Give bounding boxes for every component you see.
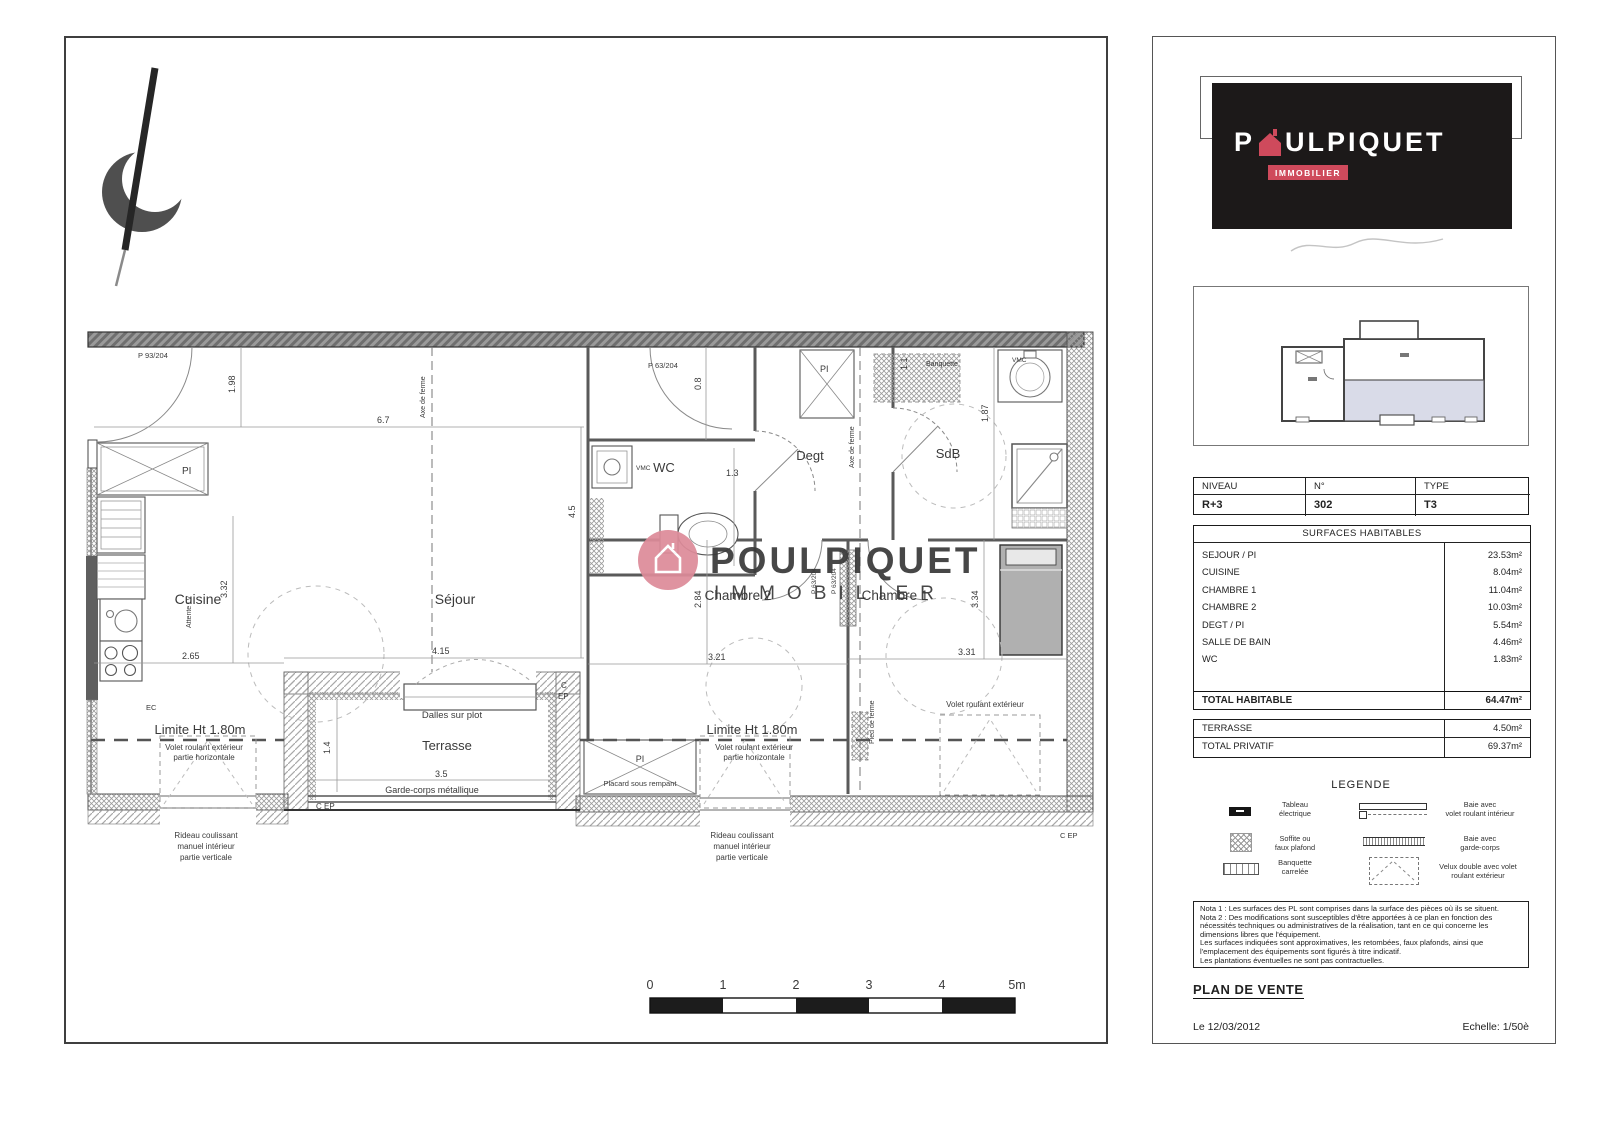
ann-volet-left-1: Volet roulant extérieur bbox=[165, 743, 243, 752]
surface-value: 5.54m² bbox=[1448, 617, 1522, 634]
table-divider bbox=[1444, 720, 1445, 757]
north-arrow-icon bbox=[102, 68, 188, 286]
scale-label-4: 4 bbox=[939, 978, 946, 992]
house-icon bbox=[1257, 128, 1283, 158]
info-header-type: TYPE bbox=[1416, 478, 1530, 495]
dim-1-3: 1.3 bbox=[726, 468, 739, 478]
surface-row: CHAMBRE 111.04m² bbox=[1194, 582, 1530, 599]
ann-volet-ext: Volet roulant extérieur bbox=[946, 700, 1024, 709]
ann-dalles: Dalles sur plot bbox=[422, 710, 483, 721]
document-date: Le 12/03/2012 bbox=[1193, 1021, 1260, 1033]
scale-label-2: 2 bbox=[793, 978, 800, 992]
notes-box: Nota 1 : Les surfaces des PL sont compri… bbox=[1193, 901, 1529, 968]
dim-0-8: 0.8 bbox=[693, 377, 703, 390]
surface-label: CHAMBRE 1 bbox=[1202, 582, 1256, 599]
pencil-scribble bbox=[1283, 231, 1453, 259]
info-panel: P ULPIQUET IMMOBILIER bbox=[1152, 36, 1556, 1044]
ann-vmc-wc: VMC bbox=[636, 465, 651, 472]
ann-placard: Placard sous rempant bbox=[604, 779, 678, 788]
watermark-brand: POULPIQUET bbox=[710, 540, 981, 581]
soffite-icon bbox=[1230, 833, 1252, 852]
total-privatif-row: TOTAL PRIVATIF 69.37m² bbox=[1194, 738, 1530, 755]
kitchen-fixtures bbox=[97, 443, 208, 681]
degt-placard bbox=[800, 350, 854, 418]
surface-value: 8.04m² bbox=[1448, 564, 1522, 581]
scale-label-5m: 5m bbox=[1008, 978, 1025, 992]
note-line: Les plantations éventuelles ne sont pas … bbox=[1200, 957, 1522, 966]
info-value-numero: 302 bbox=[1306, 495, 1416, 516]
dim-3-21: 3.21 bbox=[708, 652, 726, 662]
dim-4-5: 4.5 bbox=[567, 505, 577, 518]
privatif-table: TERRASSE 4.50m² TOTAL PRIVATIF 69.37m² bbox=[1193, 719, 1531, 758]
room-label-terrasse: Terrasse bbox=[422, 738, 472, 753]
legend-line: carrelée bbox=[1263, 868, 1327, 877]
room-label-degt: Degt bbox=[796, 448, 824, 463]
scale-bar: 0 1 2 3 4 5m bbox=[647, 978, 1026, 1013]
room-label-wc: WC bbox=[653, 460, 675, 475]
surface-label: SEJOUR / PI bbox=[1202, 547, 1256, 564]
agency-logo-text: P ULPIQUET bbox=[1234, 127, 1446, 158]
surface-label: CHAMBRE 2 bbox=[1202, 599, 1256, 616]
legend-label: Banquette carrelée bbox=[1263, 859, 1327, 876]
dim-3-31: 3.31 bbox=[958, 647, 976, 657]
surface-label: WC bbox=[1202, 651, 1218, 668]
legend-line: électrique bbox=[1263, 810, 1327, 819]
scale-label-1: 1 bbox=[720, 978, 727, 992]
bed-chambre1 bbox=[1000, 545, 1062, 655]
room-label-sejour: Séjour bbox=[435, 591, 476, 607]
ann-pied: Pied de ferme bbox=[869, 700, 876, 744]
total-privatif-label: TOTAL PRIVATIF bbox=[1202, 738, 1274, 755]
legend-line: roulant extérieur bbox=[1429, 872, 1527, 881]
legend-label: Velux double avec volet roulant extérieu… bbox=[1429, 863, 1527, 880]
legend-label: Baie avec garde-corps bbox=[1433, 835, 1527, 852]
ann-vmc-sdb: VMC bbox=[1012, 357, 1027, 364]
surface-value: 23.53m² bbox=[1448, 547, 1522, 564]
room-label-cuisine: Cuisine bbox=[175, 591, 222, 607]
surface-value: 1.83m² bbox=[1448, 651, 1522, 668]
ann-pi-rampant: PI bbox=[636, 754, 645, 764]
ann-rideau-center-2: manuel intérieur bbox=[713, 842, 771, 851]
surface-row: DEGT / PI5.54m² bbox=[1194, 617, 1530, 634]
terrasse-label: TERRASSE bbox=[1202, 720, 1252, 737]
surface-label: SALLE DE BAIN bbox=[1202, 634, 1271, 651]
legend-line: volet roulant intérieur bbox=[1433, 810, 1527, 819]
logo-subtitle: IMMOBILIER bbox=[1268, 165, 1348, 180]
scale-label-0: 0 bbox=[647, 978, 654, 992]
ann-axe-1: Axe de ferme bbox=[420, 376, 427, 418]
ann-rideau-left-1: Rideau coulissant bbox=[174, 831, 238, 840]
info-header-numero: N° bbox=[1306, 478, 1416, 495]
ann-limite-right: Limite Ht 1.80m bbox=[706, 722, 797, 737]
unit-info-table: NIVEAU N° TYPE R+3 302 T3 bbox=[1193, 477, 1529, 515]
ann-rideau-left-2: manuel intérieur bbox=[177, 842, 235, 851]
surfaces-title: SURFACES HABITABLES bbox=[1194, 526, 1530, 543]
ann-pi-degt: PI bbox=[820, 364, 829, 374]
ann-ec: EC bbox=[146, 703, 157, 712]
dim-2-65: 2.65 bbox=[182, 651, 200, 661]
ann-volet-right-1: Volet roulant extérieur bbox=[715, 743, 793, 752]
ann-limite-left: Limite Ht 1.80m bbox=[154, 722, 245, 737]
ann-rideau-center-3: partie verticale bbox=[716, 853, 769, 862]
door-label-wc: P 63/204 bbox=[648, 361, 678, 370]
surface-row: SEJOUR / PI23.53m² bbox=[1194, 547, 1530, 564]
watermark-house-icon bbox=[638, 530, 698, 590]
dim-1-1: 1.1 bbox=[899, 357, 909, 370]
ann-c: C bbox=[561, 681, 567, 690]
logo-text-rest: ULPIQUET bbox=[1285, 127, 1446, 158]
watermark-sub: IMMOBILIER bbox=[714, 583, 946, 604]
ann-banquette: Banquette bbox=[926, 361, 958, 368]
watermark: POULPIQUET IMMOBILIER bbox=[638, 530, 981, 604]
document-title: PLAN DE VENTE bbox=[1193, 982, 1304, 999]
surfaces-table: SURFACES HABITABLES SEJOUR / PI23.53m² C… bbox=[1193, 525, 1531, 710]
total-habitable-label: TOTAL HABITABLE bbox=[1202, 692, 1292, 709]
document-scale: Echelle: 1/50è bbox=[1405, 1021, 1529, 1033]
info-value-niveau: R+3 bbox=[1194, 495, 1306, 516]
ann-volet-left-2: partie horizontale bbox=[173, 753, 235, 762]
ann-axe-2: Axe de ferme bbox=[849, 426, 856, 468]
legend-label: Tableau électrique bbox=[1263, 801, 1327, 818]
legend-title: LEGENDE bbox=[1193, 779, 1529, 791]
surface-label: CUISINE bbox=[1202, 564, 1240, 581]
scale-label-3: 3 bbox=[866, 978, 873, 992]
wall-hatch-wc bbox=[590, 498, 604, 574]
surface-value: 11.04m² bbox=[1448, 582, 1522, 599]
dim-2-84: 2.84 bbox=[693, 590, 703, 608]
surface-value: 4.46m² bbox=[1448, 634, 1522, 651]
agency-logo: P ULPIQUET IMMOBILIER bbox=[1212, 83, 1512, 229]
legend-line: faux plafond bbox=[1263, 844, 1327, 853]
ann-garde-corps: Garde-corps métallique bbox=[385, 785, 479, 795]
ann-rideau-center-1: Rideau coulissant bbox=[710, 831, 774, 840]
dim-3-5: 3.5 bbox=[435, 769, 448, 779]
legend-label: Baie avec volet roulant intérieur bbox=[1433, 801, 1527, 818]
ann-volet-right-2: partie horizontale bbox=[723, 753, 785, 762]
total-habitable-value: 64.47m² bbox=[1448, 692, 1522, 709]
baie-garde-corps-icon bbox=[1363, 837, 1425, 846]
dim-1-4: 1.4 bbox=[322, 741, 332, 754]
surface-row: CHAMBRE 210.03m² bbox=[1194, 599, 1530, 616]
sdb-fixtures bbox=[874, 350, 1067, 528]
surface-row: SALLE DE BAIN4.46m² bbox=[1194, 634, 1530, 651]
ann-ep: EP bbox=[558, 692, 569, 701]
total-privatif-value: 69.37m² bbox=[1448, 738, 1522, 755]
banquette-carrelee-icon bbox=[1223, 863, 1259, 875]
info-value-type: T3 bbox=[1416, 495, 1530, 516]
building-thumbnail bbox=[1193, 286, 1529, 446]
ann-rideau-left-3: partie verticale bbox=[180, 853, 233, 862]
dim-3-34: 3.34 bbox=[970, 590, 980, 608]
tableau-electrique-icon bbox=[1229, 807, 1251, 816]
ann-cep-left: C EP bbox=[316, 802, 335, 811]
terrasse-row: TERRASSE 4.50m² bbox=[1194, 720, 1530, 738]
info-header-niveau: NIVEAU bbox=[1194, 478, 1306, 495]
logo-text-p: P bbox=[1234, 127, 1255, 158]
dim-3-32: 3.32 bbox=[219, 580, 229, 598]
surface-value: 10.03m² bbox=[1448, 599, 1522, 616]
floor-plan: Cuisine Séjour WC Degt SdB Chambre 2 Cha… bbox=[64, 36, 1108, 1044]
dim-6-7: 6.7 bbox=[377, 415, 390, 425]
velux-icon bbox=[1369, 857, 1419, 885]
door-label-entry: P 93/204 bbox=[138, 351, 168, 360]
total-habitable-row: TOTAL HABITABLE 64.47m² bbox=[1194, 691, 1530, 709]
ann-pi-cuisine: PI bbox=[182, 466, 191, 477]
ann-cep-right: C EP bbox=[1060, 831, 1078, 840]
dim-4-15: 4.15 bbox=[432, 646, 450, 656]
baie-volet-interieur-icon bbox=[1359, 803, 1427, 817]
table-divider bbox=[1444, 542, 1445, 709]
legend-label: Soffite ou faux plafond bbox=[1263, 835, 1327, 852]
dim-1-98: 1.98 bbox=[227, 375, 237, 393]
surface-row: WC1.83m² bbox=[1194, 651, 1530, 668]
terrasse-value: 4.50m² bbox=[1448, 720, 1522, 737]
surface-label: DEGT / PI bbox=[1202, 617, 1244, 634]
ann-attente-lv: Attente LV bbox=[186, 595, 193, 628]
legend-line: garde-corps bbox=[1433, 844, 1527, 853]
surface-row: CUISINE8.04m² bbox=[1194, 564, 1530, 581]
room-label-sdb: SdB bbox=[936, 446, 961, 461]
dim-1-87: 1.87 bbox=[980, 404, 990, 422]
